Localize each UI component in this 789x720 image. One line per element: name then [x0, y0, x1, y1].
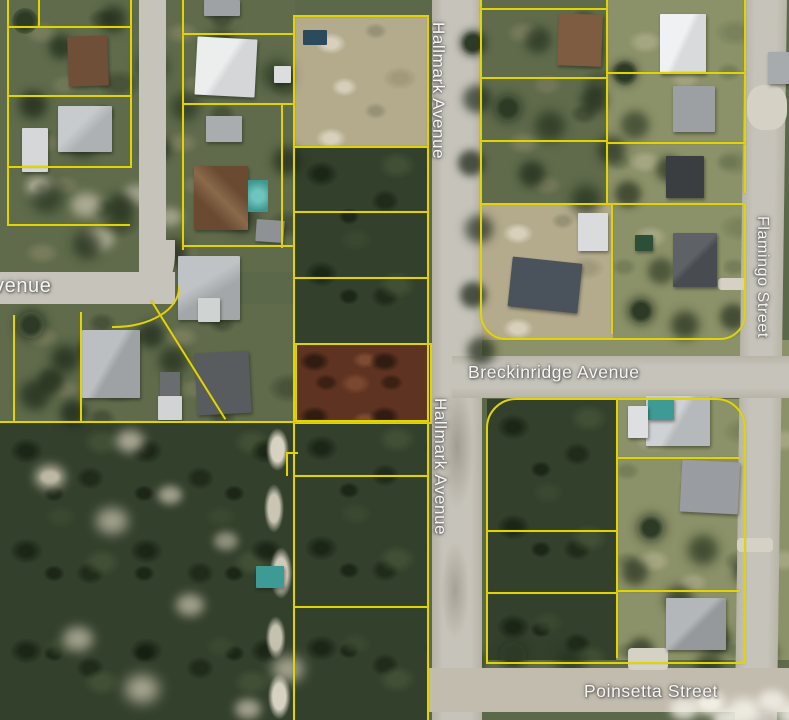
building — [160, 372, 180, 396]
parcel-line — [293, 420, 429, 422]
parcel-line — [606, 142, 746, 144]
street-label-left-avenue: venue — [0, 276, 52, 296]
aerial-parcel-map: venue Hallmark Avenue Hallmark Avenue Fl… — [0, 0, 789, 720]
parcel-line — [80, 312, 82, 421]
parcel-line — [293, 606, 429, 608]
building — [58, 106, 112, 152]
building — [666, 156, 704, 198]
building — [195, 36, 258, 97]
parcel-line — [606, 0, 608, 203]
parcel-block-outline — [480, 203, 746, 340]
highlighted-parcel — [295, 343, 432, 424]
parcel-line — [293, 146, 429, 148]
parcel-line — [281, 103, 283, 248]
parcel-line — [38, 0, 40, 28]
parcel-line — [293, 15, 429, 17]
building — [660, 14, 706, 74]
street-label-poinsetta-street: Poinsetta Street — [584, 683, 718, 701]
tree-cluster — [495, 95, 521, 121]
building — [673, 86, 715, 132]
building — [198, 298, 220, 322]
sand-patch — [30, 180, 50, 194]
street-label-hallmark-avenue-lower: Hallmark Avenue — [432, 398, 449, 558]
parcel-line — [286, 452, 298, 454]
parcel-line — [182, 33, 295, 35]
road-left-avenue-north-leg — [139, 0, 166, 252]
tree-cluster — [460, 30, 486, 56]
building — [256, 566, 284, 588]
building — [82, 330, 140, 398]
tree-cluster — [18, 312, 44, 338]
parcel-line — [7, 0, 9, 224]
building — [158, 396, 182, 420]
parcel-line — [0, 421, 295, 423]
building — [204, 0, 240, 16]
parcel-line — [293, 475, 429, 477]
building — [768, 52, 789, 84]
building — [194, 166, 248, 230]
parcel-line — [182, 0, 184, 250]
parcel-line — [7, 26, 132, 28]
parcel-line — [286, 452, 288, 476]
swimming-pool — [248, 180, 268, 212]
parcel-line — [488, 530, 616, 532]
parcel-line — [293, 211, 429, 213]
parcel-line — [618, 457, 740, 459]
parcel-line — [480, 77, 608, 79]
terrain-center-trees — [295, 146, 428, 344]
parcel-line — [616, 400, 618, 658]
parcel-line — [480, 140, 608, 142]
parcel-line — [13, 315, 15, 421]
parcel-line — [606, 72, 746, 74]
parcel-line — [293, 15, 295, 720]
driveway — [747, 85, 787, 130]
parcel-line — [182, 245, 295, 247]
parcel-line — [7, 224, 130, 226]
parcel-line — [611, 205, 613, 334]
street-label-breckinridge-avenue: Breckinridge Avenue — [468, 364, 640, 382]
street-label-hallmark-avenue-upper: Hallmark Avenue — [430, 22, 447, 172]
building — [67, 35, 109, 86]
swimming-pool — [303, 30, 327, 45]
street-label-flamingo-street: Flamingo Street — [754, 216, 770, 396]
building — [274, 66, 291, 83]
building — [557, 13, 603, 67]
tree-cluster — [12, 8, 38, 34]
parcel-line — [744, 0, 746, 193]
terrain-center-trees-lower — [295, 420, 428, 720]
parcel-line — [488, 592, 616, 594]
parcel-line — [618, 590, 740, 592]
parcel-line — [182, 103, 295, 105]
sand-patch — [40, 470, 60, 484]
parcel-line — [7, 166, 132, 168]
terrain-woods-main — [0, 423, 295, 720]
building — [206, 116, 242, 142]
parcel-line — [480, 8, 608, 10]
parcel-line — [293, 277, 429, 279]
parcel-line — [7, 95, 132, 97]
parcel-line — [480, 0, 482, 203]
